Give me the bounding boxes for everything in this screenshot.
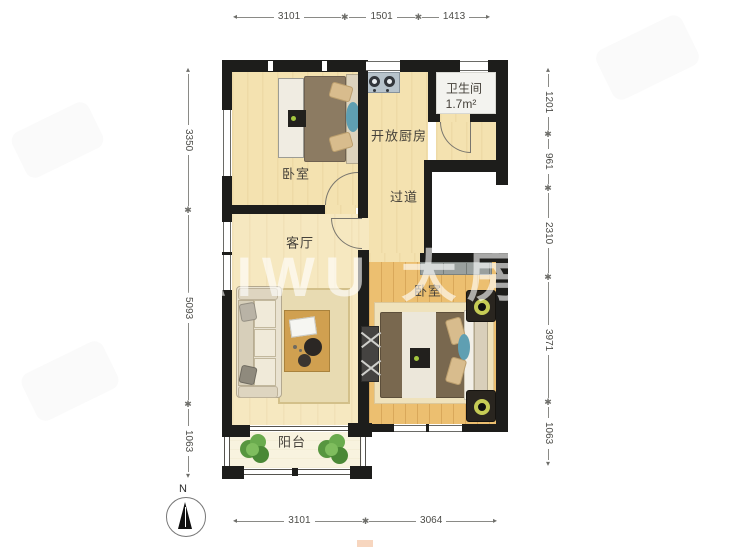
wall-segment xyxy=(462,424,508,432)
cup xyxy=(299,349,302,352)
balcony-glass-wall xyxy=(360,437,366,466)
arrow-icon xyxy=(546,66,550,74)
tv-light xyxy=(291,116,296,121)
tray xyxy=(289,316,317,337)
speaker-ring-icon xyxy=(474,299,490,315)
wall-segment xyxy=(222,60,232,110)
stove-icon xyxy=(364,72,400,93)
tick-icon xyxy=(544,130,552,139)
sofa-cushion xyxy=(254,329,276,357)
wall-segment xyxy=(222,60,366,72)
dimension-label: 3101 xyxy=(274,12,304,22)
dimension-label: 3101 xyxy=(284,516,314,526)
room-label-bathroom-area: 1.7m² xyxy=(446,97,477,111)
dimension-right: 1201 961 2310 3971 1063 xyxy=(541,66,555,468)
wall-segment xyxy=(222,290,232,425)
plant-icon xyxy=(240,434,270,466)
wall-segment xyxy=(496,253,508,432)
dimension-segment: 3101 xyxy=(237,516,362,526)
speaker-ring-icon xyxy=(474,399,490,415)
dimension-segment: 5093 xyxy=(183,215,193,400)
room-label-hallway: 过道 xyxy=(390,187,418,206)
nightstand-speaker xyxy=(466,390,496,422)
tick-icon xyxy=(184,206,192,215)
arrow-icon xyxy=(186,66,190,74)
dimension-label: 2310 xyxy=(543,218,553,248)
cup xyxy=(293,345,297,349)
compass-needle-highlight xyxy=(185,507,186,527)
wall-segment xyxy=(420,253,508,262)
dimension-segment: 3971 xyxy=(543,282,553,398)
dimension-label: 3064 xyxy=(416,516,446,526)
tick-icon xyxy=(415,13,423,22)
wall-tick xyxy=(322,61,327,71)
room-label-bedroom-top: 卧室 xyxy=(282,164,310,183)
tick-icon xyxy=(341,13,349,22)
faint-watermark xyxy=(8,99,106,181)
room-label-bathroom: 卫生间 xyxy=(446,80,482,97)
dimension-label: 3971 xyxy=(543,325,553,355)
dimension-segment: 2310 xyxy=(543,193,553,273)
wall-tick xyxy=(222,252,232,255)
balcony-glass-wall xyxy=(224,437,230,466)
arrow-icon xyxy=(486,13,490,21)
dimension-label: 1063 xyxy=(543,418,553,448)
dimension-top: 3101 1501 1413 xyxy=(233,10,490,24)
arrow-icon xyxy=(186,472,190,480)
stove-knob xyxy=(386,89,389,92)
dimension-left: 3350 5093 1063 xyxy=(181,66,195,480)
dimension-label: 1413 xyxy=(439,12,469,22)
throw-pillow xyxy=(239,302,258,323)
room-label-kitchen: 开放厨房 xyxy=(371,126,427,145)
dimension-label: 3350 xyxy=(183,125,193,155)
wall-segment xyxy=(470,114,496,122)
tv xyxy=(410,348,430,368)
sofa-armrest xyxy=(238,386,278,398)
wall-tick xyxy=(268,61,273,71)
wardrobe xyxy=(420,262,492,275)
burner-icon xyxy=(384,76,395,87)
arrow-icon xyxy=(493,517,497,525)
sofa-cushion xyxy=(254,300,276,328)
doorway-floor xyxy=(325,205,356,214)
dimension-segment: 1063 xyxy=(183,409,193,472)
faint-watermark xyxy=(593,12,702,103)
compass-icon: N xyxy=(160,483,210,543)
dimension-label: 1063 xyxy=(183,426,193,456)
sofa-cushion xyxy=(254,358,276,386)
balcony-threshold xyxy=(250,426,348,431)
tv-light xyxy=(414,356,419,361)
plant-icon xyxy=(318,434,350,466)
tick-icon xyxy=(544,184,552,193)
wall-segment xyxy=(428,60,436,122)
wall-tick xyxy=(426,424,429,432)
wall-segment xyxy=(428,114,440,122)
teapot xyxy=(304,338,322,356)
wall-segment xyxy=(348,423,372,437)
wall-post xyxy=(350,466,372,479)
burner-icon xyxy=(369,76,380,87)
window xyxy=(223,110,231,176)
wall-segment xyxy=(424,160,432,253)
partial-logo xyxy=(357,540,373,547)
wall-post xyxy=(222,466,244,479)
tick-icon xyxy=(184,400,192,409)
wall-segment xyxy=(222,176,232,222)
dimension-segment: 1063 xyxy=(543,407,553,460)
tick-icon xyxy=(544,273,552,282)
stove-knob xyxy=(373,89,376,92)
tick-icon xyxy=(362,517,370,526)
wall-segment xyxy=(222,425,250,437)
wall-segment xyxy=(424,160,500,172)
dimension-bottom: 3101 3064 xyxy=(233,514,497,528)
room-label-balcony: 阳台 xyxy=(278,432,306,451)
dimension-segment: 3064 xyxy=(369,516,493,526)
dimension-label: 961 xyxy=(543,149,553,174)
window xyxy=(223,222,231,290)
dimension-segment: 1501 xyxy=(349,12,415,22)
arrow-icon xyxy=(546,460,550,468)
bed-headboard xyxy=(474,308,488,402)
compass-north-label: N xyxy=(179,483,187,495)
tick-icon xyxy=(544,398,552,407)
wall-segment xyxy=(358,60,368,218)
bed-decor xyxy=(458,334,470,360)
faint-watermark xyxy=(18,338,122,424)
wall-tick xyxy=(292,468,298,476)
dimension-segment: 1413 xyxy=(422,12,486,22)
sofa-armrest xyxy=(238,288,278,300)
nightstand-speaker xyxy=(466,290,496,322)
dimension-label: 1201 xyxy=(543,87,553,117)
window xyxy=(366,61,400,71)
room-label-living-room: 客厅 xyxy=(286,233,314,252)
dimension-segment: 3350 xyxy=(183,74,193,206)
room-floor-entrance-strip xyxy=(369,253,420,262)
room-label-bedroom-right: 卧室 xyxy=(414,281,442,300)
teapot xyxy=(298,354,311,367)
floor-plan: 卧室 开放厨房 卫生间 1.7m² 过道 客厅 卧室 阳台 3101 1501 … xyxy=(0,0,729,547)
window xyxy=(460,61,488,71)
dimension-label: 1501 xyxy=(366,12,396,22)
dimension-segment: 1201 xyxy=(543,74,553,130)
room-floor-kitchen-hallway xyxy=(366,72,428,253)
dimension-label: 5093 xyxy=(183,293,193,323)
radiator xyxy=(361,326,379,382)
wall-segment xyxy=(222,205,325,214)
dimension-segment: 961 xyxy=(543,139,553,184)
doorway-floor xyxy=(440,114,470,122)
dimension-segment: 3101 xyxy=(237,12,341,22)
